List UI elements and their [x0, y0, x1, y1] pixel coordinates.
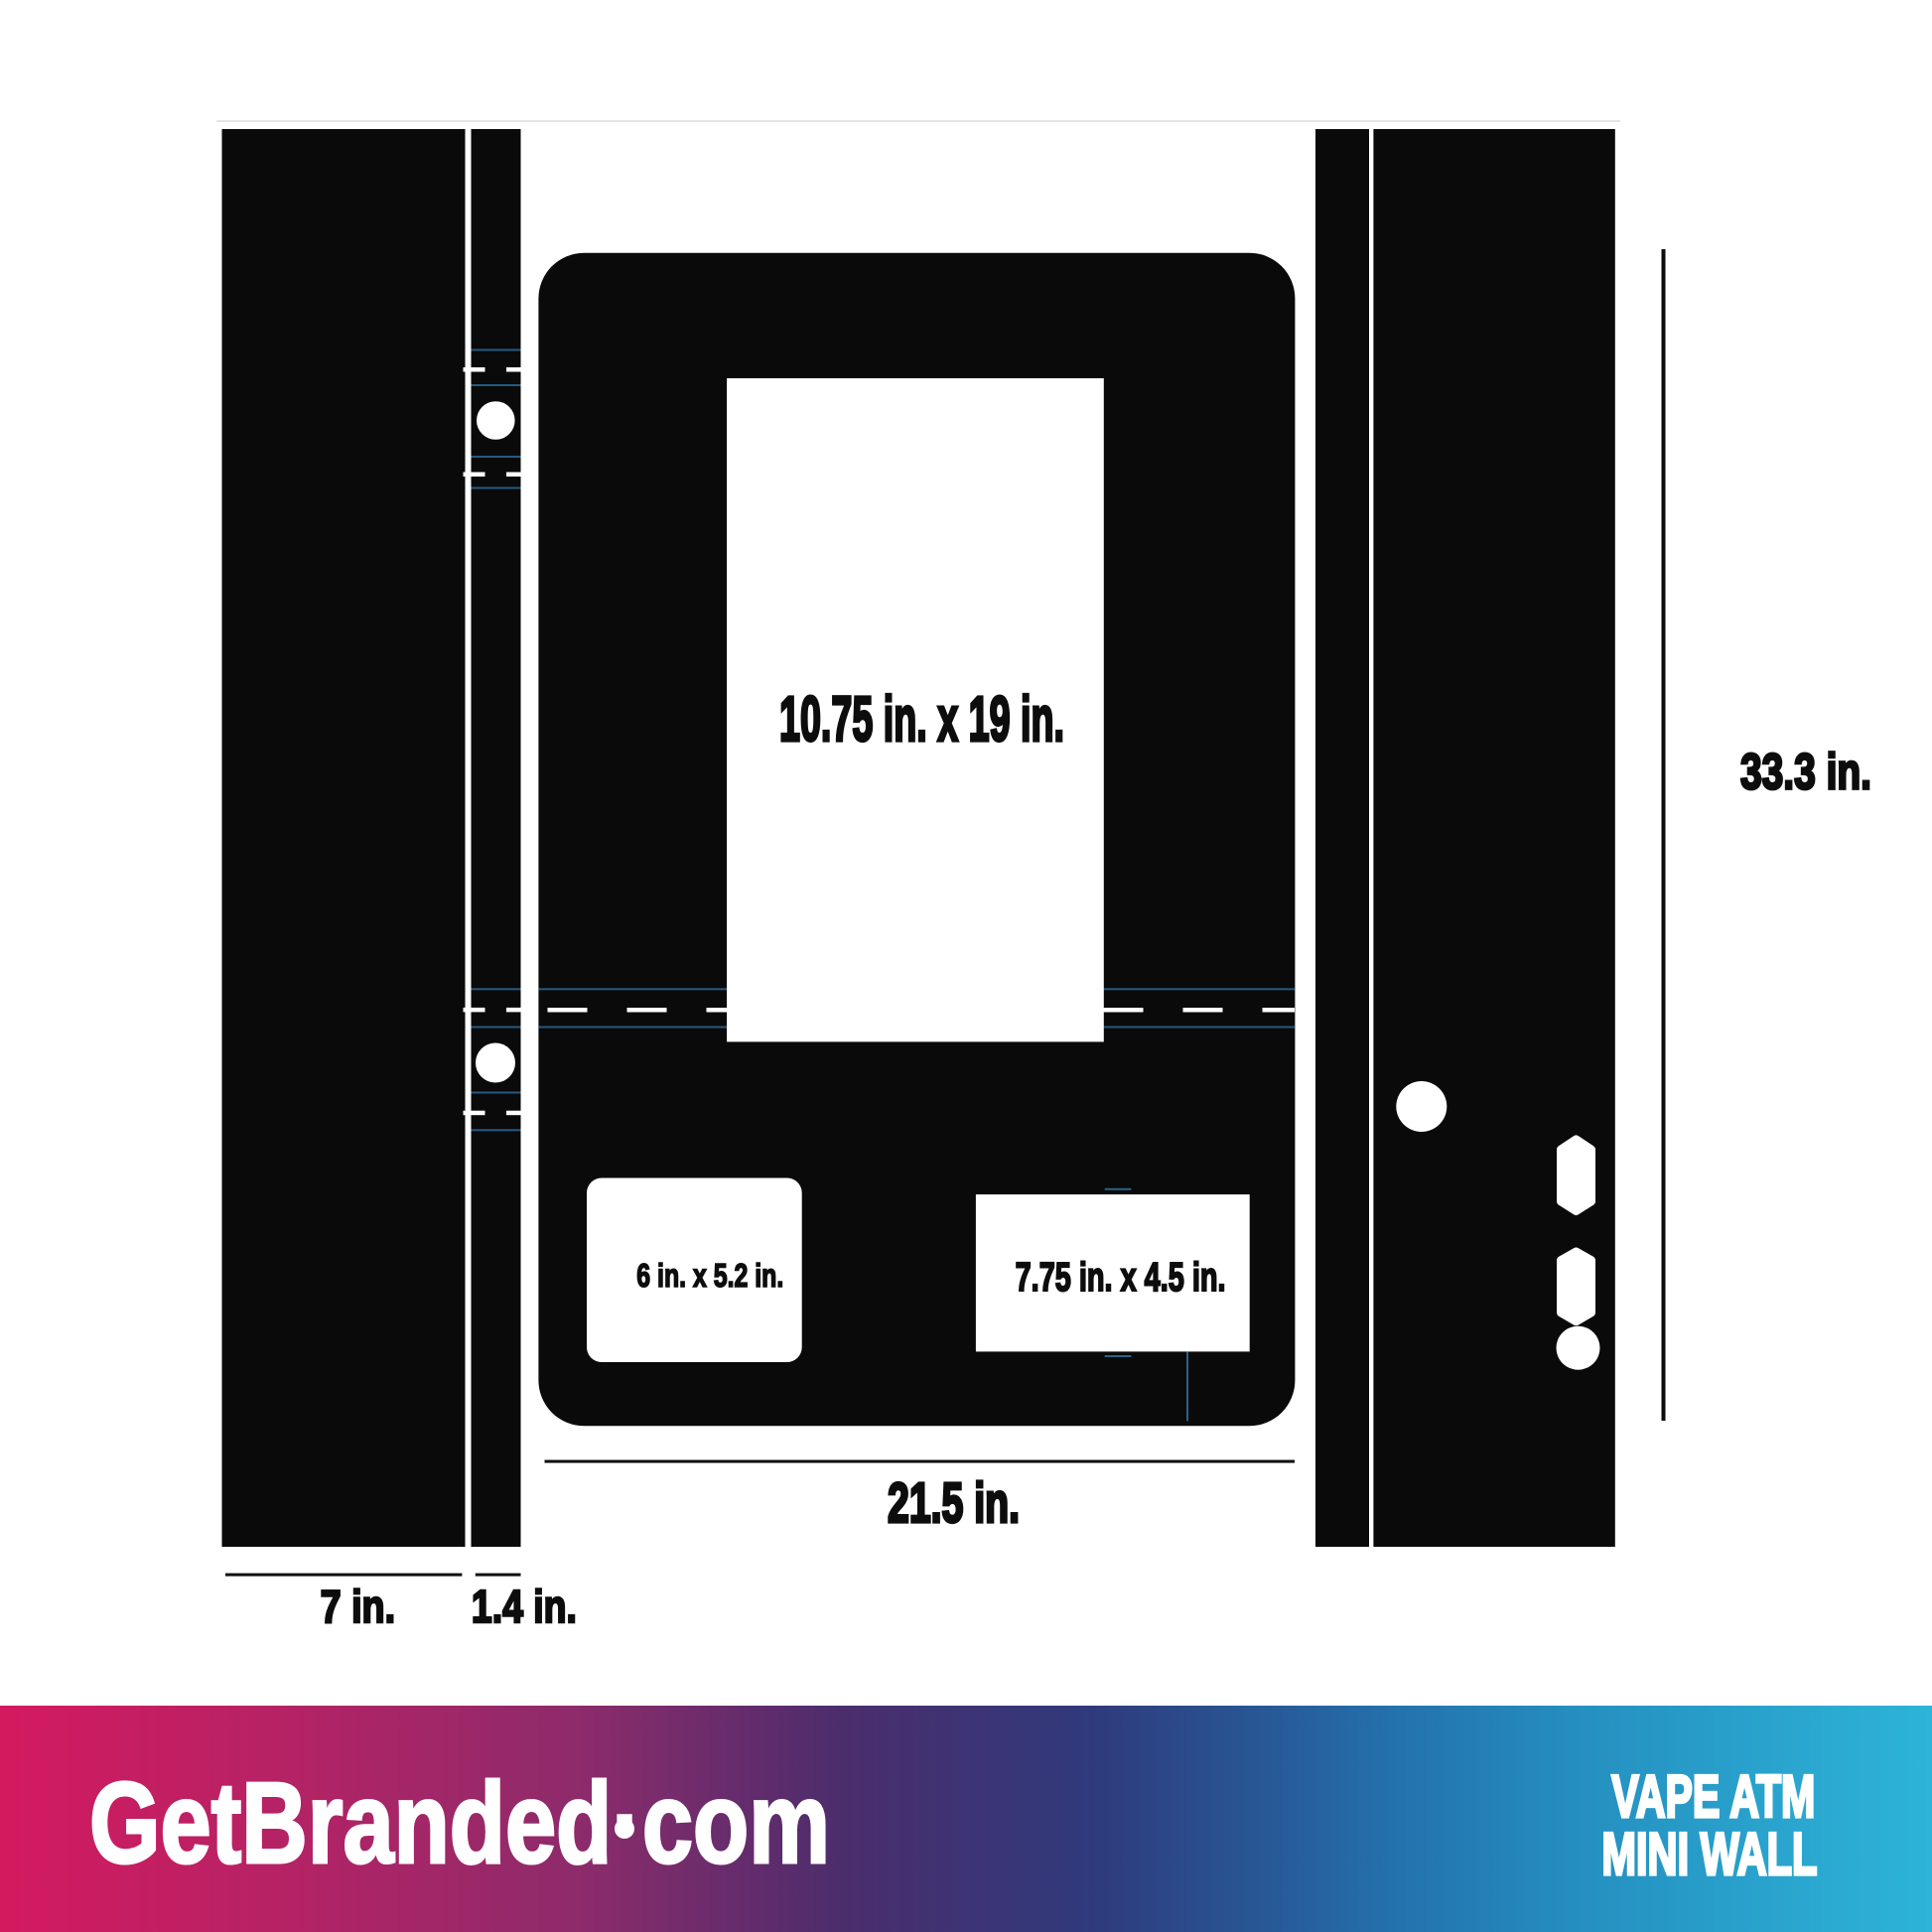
svg-text:VAPE ATM: VAPE ATM [1611, 1763, 1815, 1830]
svg-text:21.5 in.: 21.5 in. [888, 1471, 1020, 1535]
svg-text:7 in.: 7 in. [321, 1581, 396, 1632]
svg-text:7.75 in. x 4.5 in.: 7.75 in. x 4.5 in. [1016, 1254, 1226, 1300]
svg-text:10.75 in. x 19 in.: 10.75 in. x 19 in. [779, 683, 1064, 755]
svg-text:1.4 in.: 1.4 in. [472, 1581, 577, 1632]
svg-text:6 in. x 5.2 in.: 6 in. x 5.2 in. [636, 1257, 783, 1294]
svg-text:MINI WALL: MINI WALL [1601, 1821, 1817, 1887]
svg-text:33.3 in.: 33.3 in. [1740, 744, 1871, 800]
svg-text:GetBranded·com: GetBranded·com [89, 1758, 830, 1887]
